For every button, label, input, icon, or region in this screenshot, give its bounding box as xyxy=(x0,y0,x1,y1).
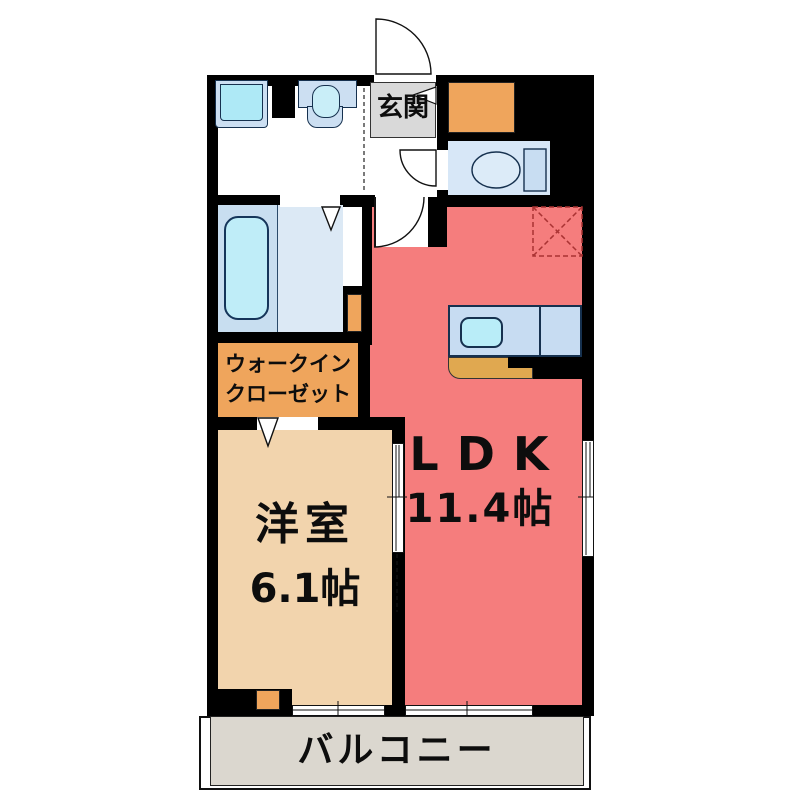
western-room-label: 洋室 xyxy=(218,500,392,551)
entrance-label: 玄関 xyxy=(370,94,436,124)
kitchen-sink xyxy=(460,317,503,348)
wall-right-lower xyxy=(582,557,594,716)
ldk-size: 11.4帖 xyxy=(375,486,585,532)
ldk-label: LDK xyxy=(382,428,582,481)
ldk-door-area xyxy=(374,197,428,247)
pipe-space xyxy=(347,294,362,332)
wall-stub-washroom xyxy=(272,78,295,118)
bathroom-door-opening xyxy=(280,195,340,207)
shoe-cabinet xyxy=(448,82,515,133)
toilet-door-swing-icon xyxy=(400,150,436,186)
wall-stub-ldk-door xyxy=(428,197,447,247)
pillar-box xyxy=(256,690,280,710)
kitchen-counter-divider xyxy=(539,306,541,356)
window-ldk-south xyxy=(405,705,533,716)
wall-kitchen-end-lower xyxy=(533,357,582,379)
floorplan-canvas: 玄関 LDK 11.4帖 洋室 6.1帖 ウォークイン クローゼット バルコニー xyxy=(0,0,800,800)
balcony-label: バルコニー xyxy=(210,730,584,771)
walk-in-closet-label-line1: ウォークイン xyxy=(218,352,358,376)
bathtub xyxy=(224,216,269,320)
entrance-door-swing-icon xyxy=(376,19,431,74)
toilet-room xyxy=(448,141,550,195)
wall-bottom-mid xyxy=(385,705,405,716)
vanity-basin xyxy=(312,85,340,118)
bathroom-floor-dry xyxy=(277,205,343,332)
western-room-size: 6.1帖 xyxy=(218,566,392,612)
window-western-room xyxy=(292,705,385,716)
walk-in-closet-label-line2: クローゼット xyxy=(218,382,358,406)
closet-door-opening xyxy=(257,417,318,430)
toilet-door-opening xyxy=(436,150,448,190)
wall-bottom-right xyxy=(533,705,594,716)
washing-machine-pan-inner xyxy=(220,84,263,121)
bathroom-side-space xyxy=(343,207,362,286)
